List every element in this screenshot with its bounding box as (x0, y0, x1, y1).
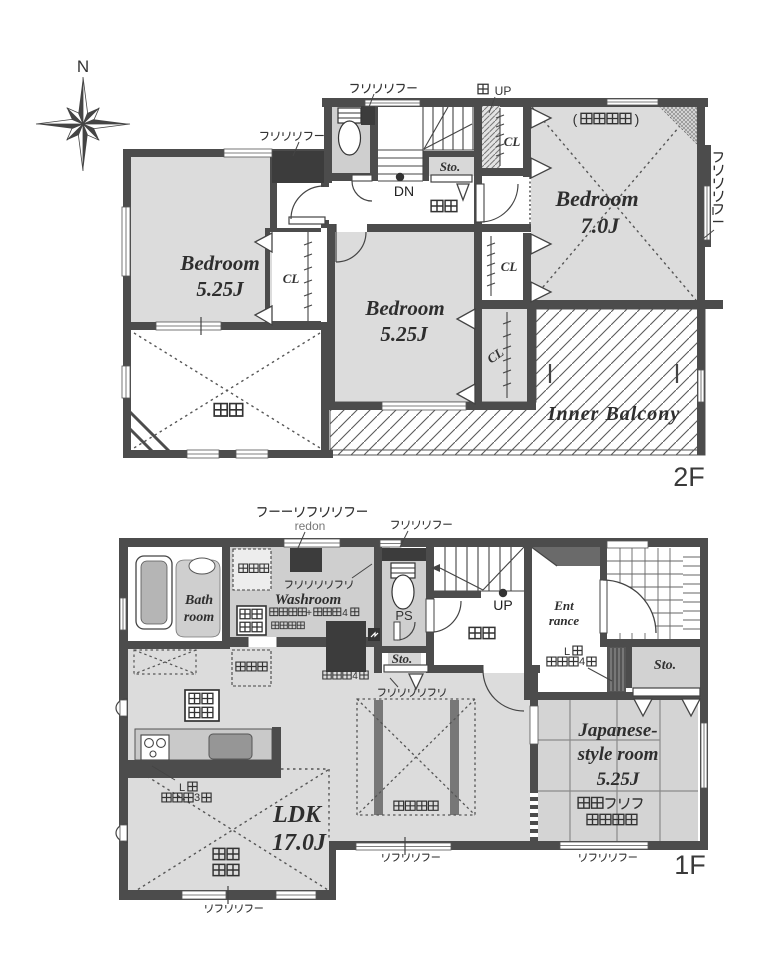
svg-text:4: 4 (342, 608, 348, 619)
svg-text:PS: PS (395, 608, 413, 623)
svg-text:3: 3 (194, 792, 200, 804)
svg-text:Bedroom: Bedroom (179, 251, 259, 275)
svg-text:Ent: Ent (553, 598, 574, 613)
svg-text:CL: CL (504, 134, 521, 149)
svg-text:7.0J: 7.0J (581, 213, 621, 238)
svg-text:5.25J: 5.25J (597, 769, 640, 790)
svg-text:4: 4 (352, 671, 358, 682)
svg-text:Japanese-: Japanese- (577, 720, 657, 741)
svg-text:Sto.: Sto. (654, 658, 676, 673)
svg-text:): ) (635, 111, 640, 127)
svg-text:UP: UP (493, 597, 512, 613)
svg-text:CL: CL (501, 259, 518, 274)
svg-text:Bath: Bath (184, 593, 213, 608)
svg-text:DN: DN (394, 183, 414, 199)
svg-text:5.25J: 5.25J (196, 277, 245, 301)
svg-text:1F: 1F (674, 850, 706, 880)
svg-text:Sto.: Sto. (392, 651, 413, 666)
svg-text:Inner Balcony: Inner Balcony (547, 403, 680, 425)
svg-text:CL: CL (283, 271, 300, 286)
svg-text:17.0J: 17.0J (272, 830, 327, 856)
svg-text:(: ( (573, 111, 578, 127)
svg-text:L: L (179, 782, 185, 794)
svg-text:Bedroom: Bedroom (364, 296, 444, 320)
svg-text:Washroom: Washroom (275, 592, 341, 608)
svg-text:4: 4 (579, 656, 585, 668)
svg-text:L: L (564, 646, 570, 658)
svg-text:redon: redon (295, 519, 326, 533)
svg-text:+: + (306, 608, 312, 619)
svg-text:LDK: LDK (272, 802, 323, 828)
svg-text:Bedroom: Bedroom (554, 186, 638, 211)
svg-text:style room: style room (577, 744, 659, 765)
svg-text:2F: 2F (673, 462, 705, 492)
svg-text:Sto.: Sto. (440, 159, 461, 174)
svg-text:rance: rance (549, 613, 580, 628)
svg-text:UP: UP (495, 84, 512, 98)
svg-text:room: room (184, 610, 214, 625)
svg-text:5.25J: 5.25J (380, 322, 429, 346)
svg-text:N: N (77, 57, 89, 76)
